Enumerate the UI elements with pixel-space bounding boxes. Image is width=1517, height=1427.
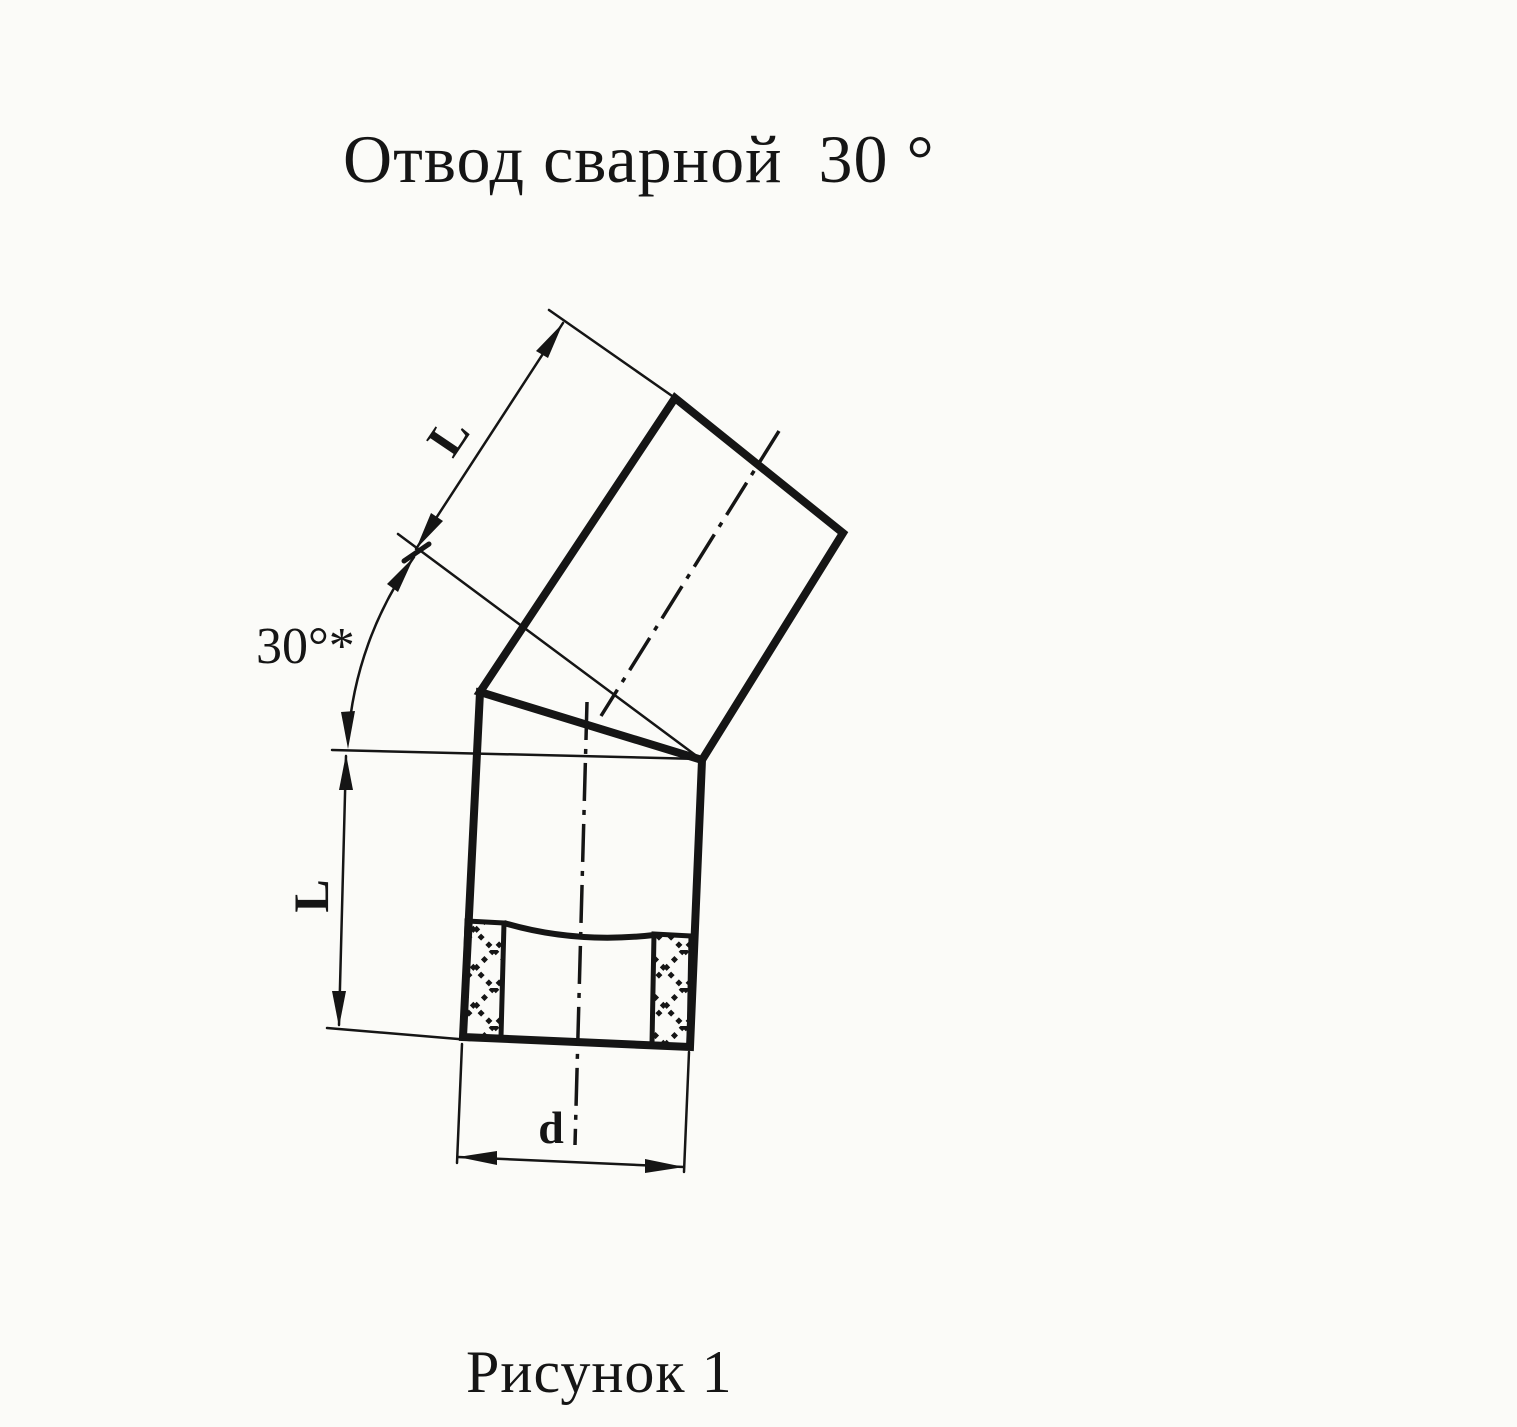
figure-caption: Рисунок 1	[466, 1338, 733, 1407]
arrowhead-lower-L-top	[339, 754, 353, 790]
pipe-wall-section-right	[652, 934, 691, 1046]
extension-line-d-left	[457, 1044, 462, 1163]
extension-line-d-right	[684, 1052, 689, 1172]
scanned-drawing-page: Отвод сварной 30 °	[0, 0, 1517, 1427]
upper-length-dimension: L	[404, 310, 675, 561]
elbow-technical-drawing: L 30°* L d	[0, 0, 1517, 1427]
pipe-wall-section-left	[463, 921, 504, 1037]
lower-length-label: L	[283, 879, 339, 912]
angle-label: 30°*	[256, 618, 355, 675]
diameter-label: d	[538, 1102, 564, 1153]
upper-length-label: L	[415, 407, 480, 466]
extension-line-horizontal	[332, 750, 700, 759]
angle-arc	[348, 557, 414, 740]
extension-line-bottom-left	[327, 1028, 470, 1040]
arrowhead-d-left	[458, 1151, 497, 1165]
extension-line-top-face	[549, 310, 675, 398]
extension-line-mitre-plane	[398, 534, 702, 760]
arrowhead-lower-L-bottom	[332, 991, 346, 1027]
arrowhead-d-right	[645, 1159, 684, 1173]
arrowhead-angle-top	[387, 557, 414, 592]
upper-pipe-segment	[480, 398, 843, 760]
diameter-dimension: d	[457, 1044, 689, 1173]
centerline-lower-segment	[575, 702, 587, 1145]
arrowhead-angle-bottom	[341, 711, 355, 749]
dimension-line-lower-L	[339, 756, 346, 1025]
arrowhead-upper-L-top	[536, 323, 563, 358]
lower-length-dimension: L	[283, 754, 470, 1040]
